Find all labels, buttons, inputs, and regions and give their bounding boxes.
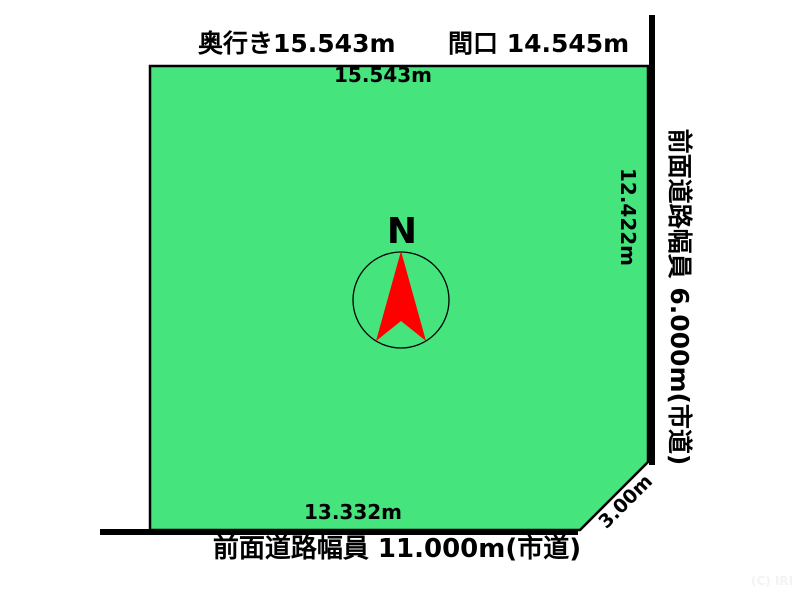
- depth-dimension-label: 奥行き15.543m: [198, 30, 396, 58]
- bottom-edge-dimension: 13.332m: [304, 501, 402, 523]
- copyright-watermark: (C) IRI: [751, 575, 793, 588]
- right-edge-dimension: 12.422m: [617, 168, 639, 266]
- bottom-road-width-label: 前面道路幅員 11.000m(市道): [213, 535, 581, 564]
- compass-north-label: N: [387, 212, 417, 252]
- right-road-line: [649, 15, 655, 465]
- land-plot-diagram: 奥行き15.543m 間口 14.545m 15.543m 12.422m 前面…: [0, 0, 800, 600]
- right-road-width-label: 前面道路幅員 6.000m(市道): [665, 129, 693, 466]
- frontage-dimension-label: 間口 14.545m: [448, 30, 629, 58]
- top-edge-dimension: 15.543m: [334, 64, 432, 86]
